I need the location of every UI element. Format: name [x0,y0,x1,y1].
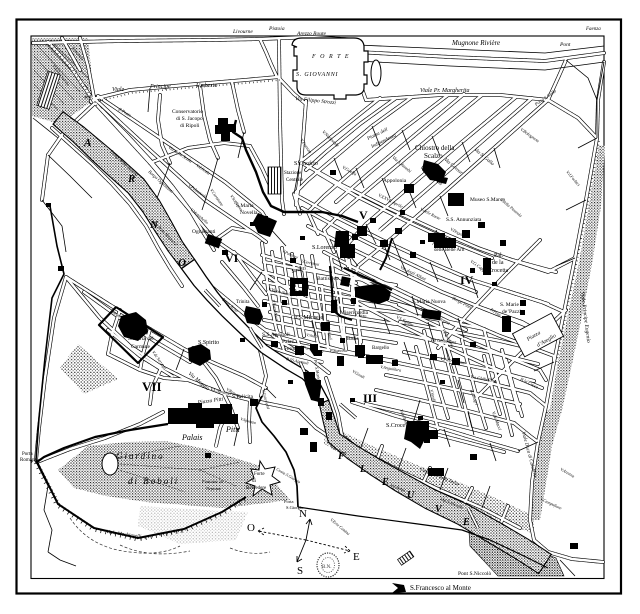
svg-text:S. GIOVANNI: S. GIOVANNI [296,72,339,78]
svg-text:de la: de la [492,260,504,266]
svg-text:Pont: Pont [559,42,571,48]
svg-text:di: di [252,479,257,484]
svg-text:S.Lorenzo: S.Lorenzo [312,245,337,251]
svg-text:Bargello: Bargello [372,346,390,351]
svg-text:S.Croce: S.Croce [386,423,406,429]
svg-text:Appolonia: Appolonia [383,178,407,184]
svg-text:B.N.: B.N. [322,565,331,570]
svg-text:S. Marie: S. Marie [500,302,520,308]
svg-text:Trinita: Trinita [236,300,250,305]
svg-text:Arezzo Route: Arezzo Route [296,31,327,37]
svg-text:Neptune: Neptune [205,486,221,491]
svg-text:Giardino: Giardino [116,451,165,461]
svg-text:IV: IV [460,273,474,287]
svg-text:Livourne: Livourne [232,29,253,35]
svg-text:Belvedere: Belvedere [246,486,267,491]
svg-text:Conservatorio: Conservatorio [172,109,203,115]
svg-text:Romana: Romana [20,458,37,463]
svg-text:Or.S.Michele: Or.S.Michele [291,315,323,321]
svg-text:O: O [247,522,255,534]
svg-text:di S. Jacopo: di S. Jacopo [176,116,203,122]
svg-text:F O R T E: F O R T E [311,54,350,60]
svg-text:E: E [381,477,389,488]
svg-text:Viale: Viale [112,87,125,93]
svg-text:S.S.Apostoli: S.S.Apostoli [262,332,290,338]
svg-text:Pal.: Pal. [494,253,504,259]
svg-text:L: L [359,464,366,475]
svg-text:Stazione: Stazione [284,171,302,176]
svg-text:P.Signoria: P.Signoria [329,348,348,353]
svg-text:III: III [363,391,377,405]
svg-text:Carmine: Carmine [131,344,150,350]
svg-text:U: U [407,490,415,501]
svg-text:S.Francesco al Monte: S.Francesco al Monte [410,584,471,592]
svg-text:Accademia: Accademia [432,242,455,247]
svg-text:S.Giorgio: S.Giorgio [286,505,304,510]
svg-text:O: O [178,257,186,269]
svg-text:Forte: Forte [254,472,265,477]
svg-text:Mugnone Rivière: Mugnone Rivière [451,39,500,47]
svg-text:A: A [83,137,91,149]
svg-text:*: * [30,459,34,467]
svg-text:Pistoia: Pistoia [268,26,285,32]
svg-text:Novella: Novella [240,210,258,216]
svg-text:S.Onofrio: S.Onofrio [294,160,318,167]
svg-text:delle Belle Arti: delle Belle Arti [434,248,465,253]
svg-text:S.Maria Nuova: S.Maria Nuova [412,299,446,305]
svg-text:Viale Pr. Margherita: Viale Pr. Margherita [420,88,470,94]
svg-text:E: E [462,517,470,528]
svg-text:**: ** [84,94,92,103]
svg-text:S.S. Annunziata: S.S. Annunziata [446,217,482,223]
svg-text:Centrale: Centrale [286,178,304,183]
svg-text:S.Spirito: S.Spirito [198,340,219,346]
svg-text:Ognissanti: Ognissanti [192,229,216,235]
svg-text:Battistero: Battistero [317,276,339,282]
svg-text:Porta: Porta [22,452,33,457]
svg-text:de’Pazzi: de’Pazzi [502,309,521,315]
svg-text:Palaz.: Palaz. [282,339,296,345]
svg-text:S.Maria del: S.Maria del [128,336,154,342]
svg-text:Scalzo: Scalzo [424,152,443,160]
svg-text:Pitti: Pitti [225,425,240,434]
svg-text:di Ripoli: di Ripoli [180,123,200,129]
svg-text:Umberto: Umberto [196,83,217,89]
svg-text:Fontaine de: Fontaine de [201,479,224,484]
svg-text:Principe: Principe [149,84,171,90]
svg-text:Palais: Palais [181,433,202,442]
svg-text:Porta: Porta [284,499,294,504]
svg-text:V: V [359,208,368,222]
svg-text:E: E [353,551,360,563]
svg-text:VI: VI [225,251,239,265]
svg-text:Faenza: Faenza [585,27,601,32]
svg-text:Chiostro della: Chiostro della [415,144,455,152]
svg-text:VII: VII [142,379,162,394]
svg-text:Pont S.Niccolò: Pont S.Niccolò [458,571,492,577]
svg-text:Feroni: Feroni [284,346,299,352]
svg-text:Badia: Badia [347,337,359,342]
svg-text:S: S [297,565,303,577]
svg-text:di Boboli: di Boboli [128,476,179,486]
